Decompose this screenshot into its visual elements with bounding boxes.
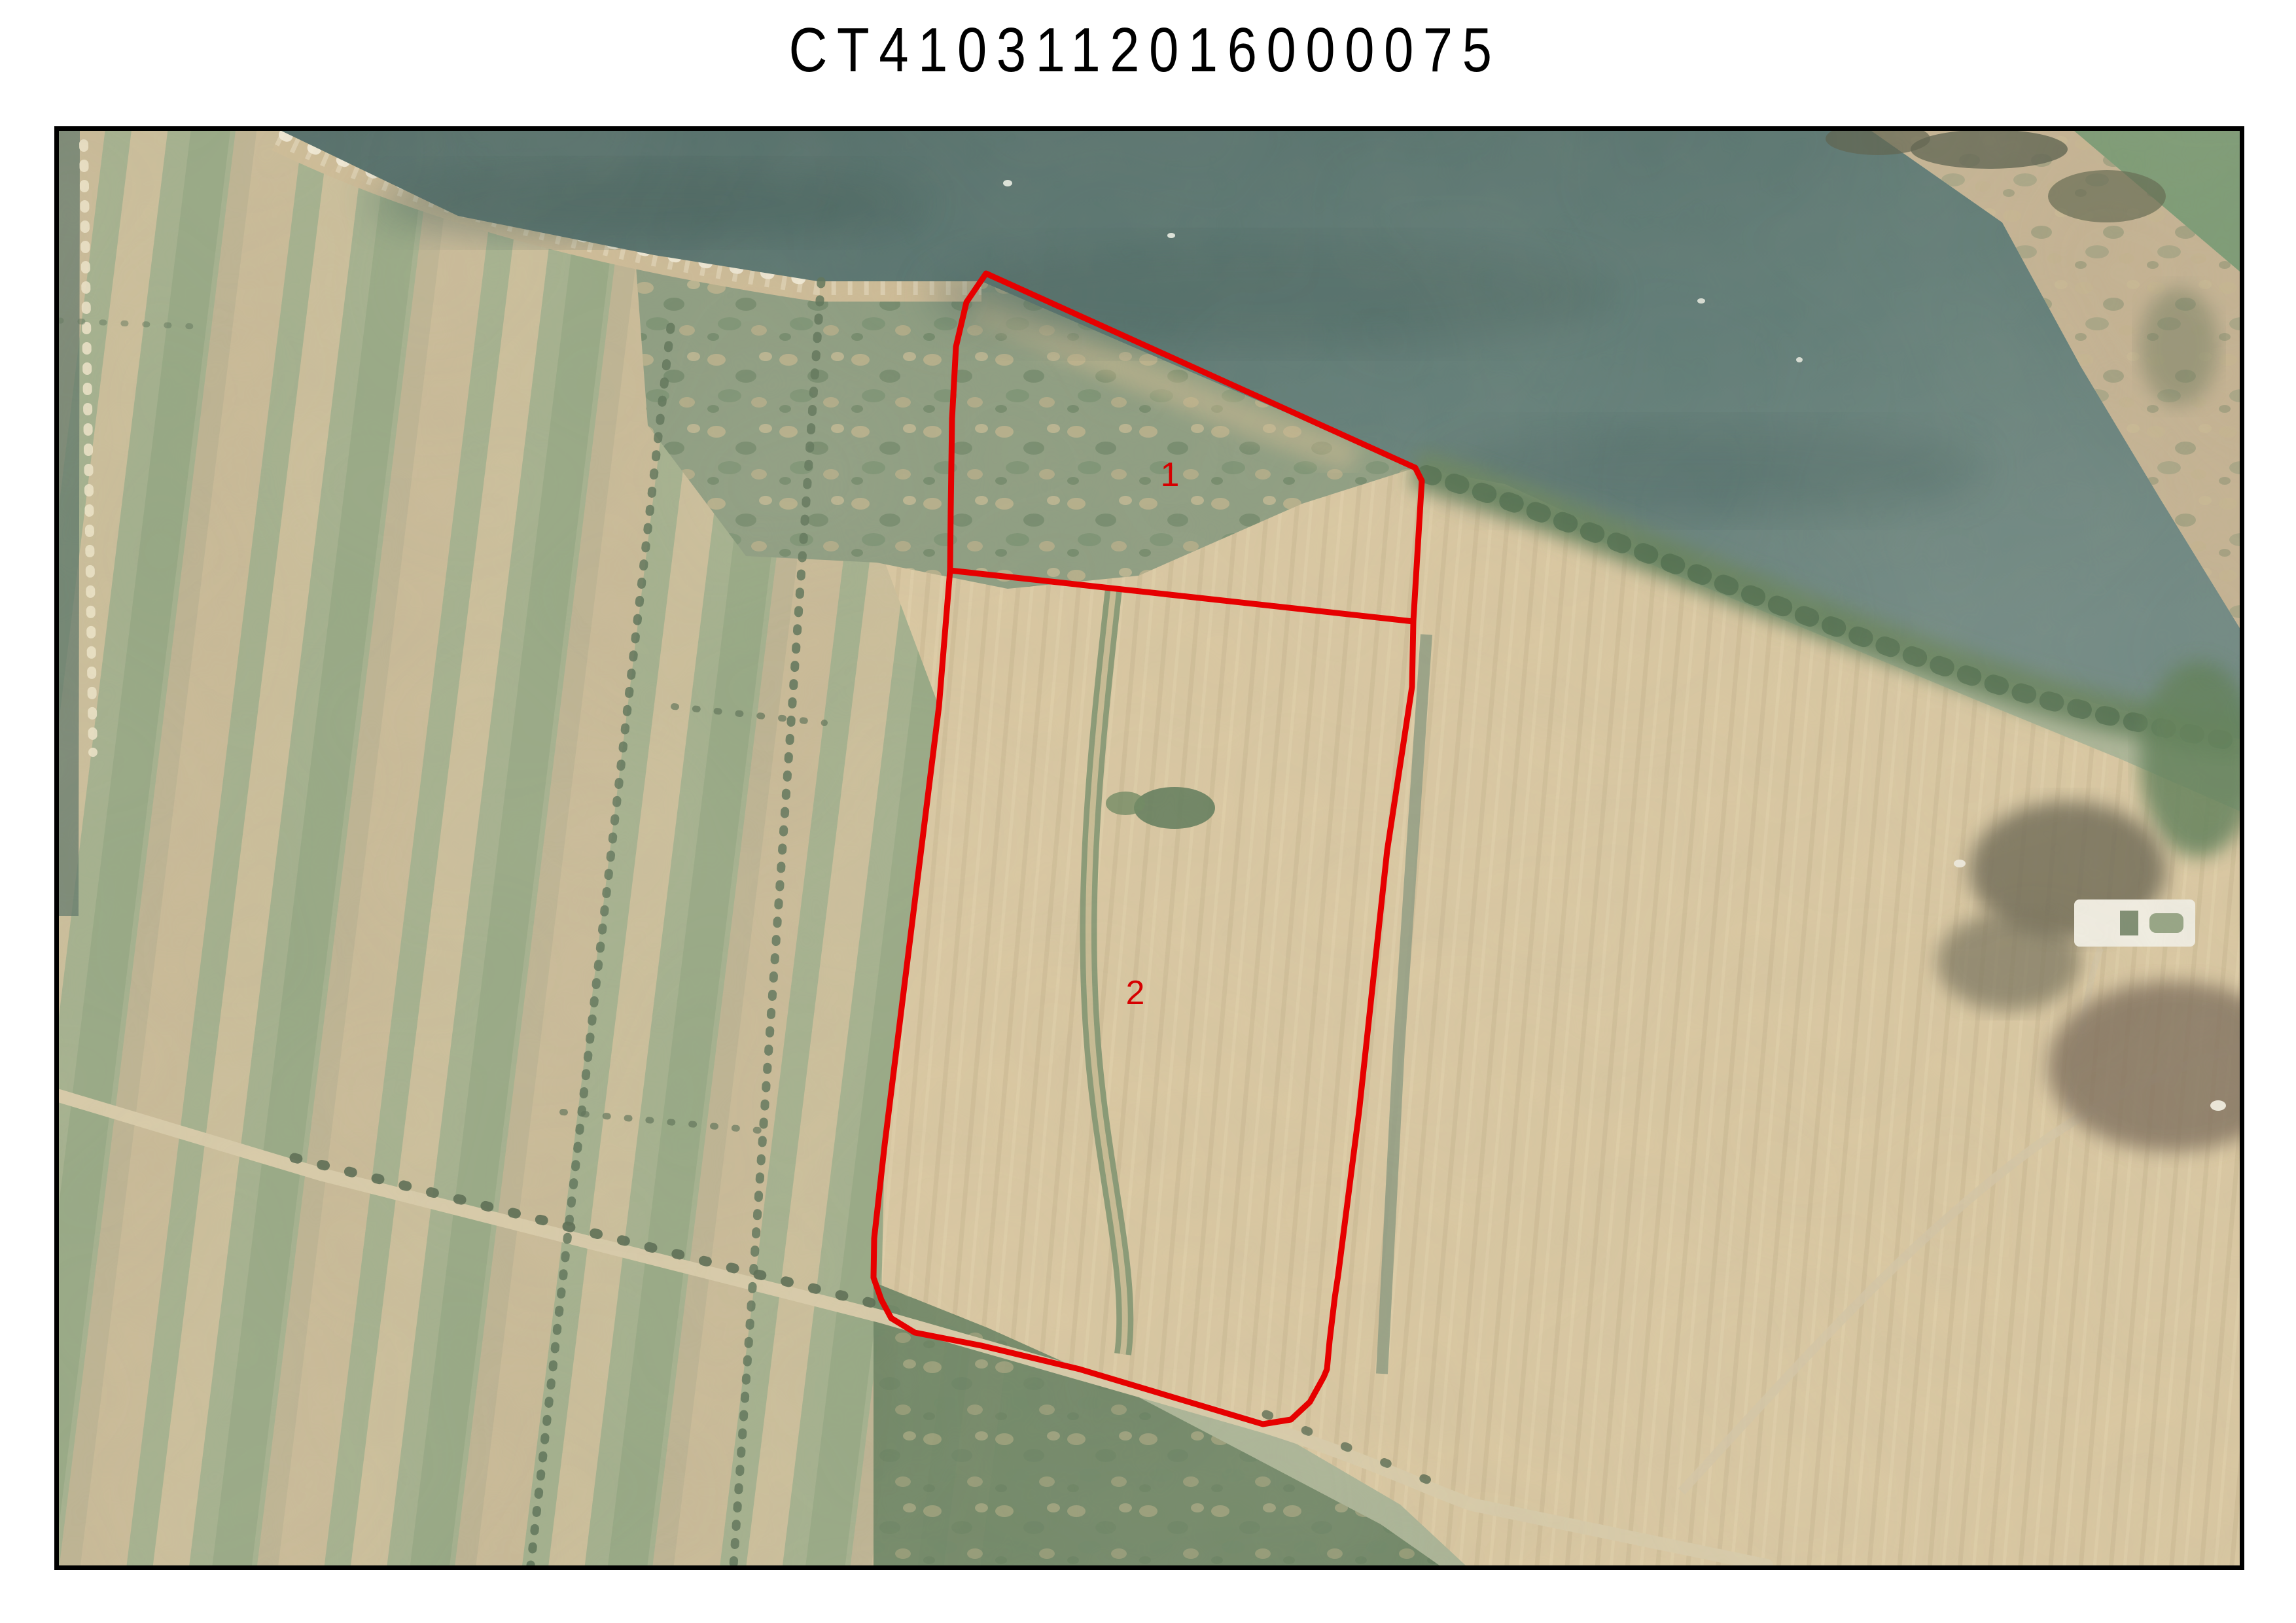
parcel-2-label: 2 [1126,974,1145,1012]
satellite-map: 1 2 [59,131,2240,1565]
map-frame: 1 2 [54,126,2244,1570]
parcel-1-label: 1 [1161,456,1180,494]
page-title: CT4103112016000075 [789,14,1502,86]
